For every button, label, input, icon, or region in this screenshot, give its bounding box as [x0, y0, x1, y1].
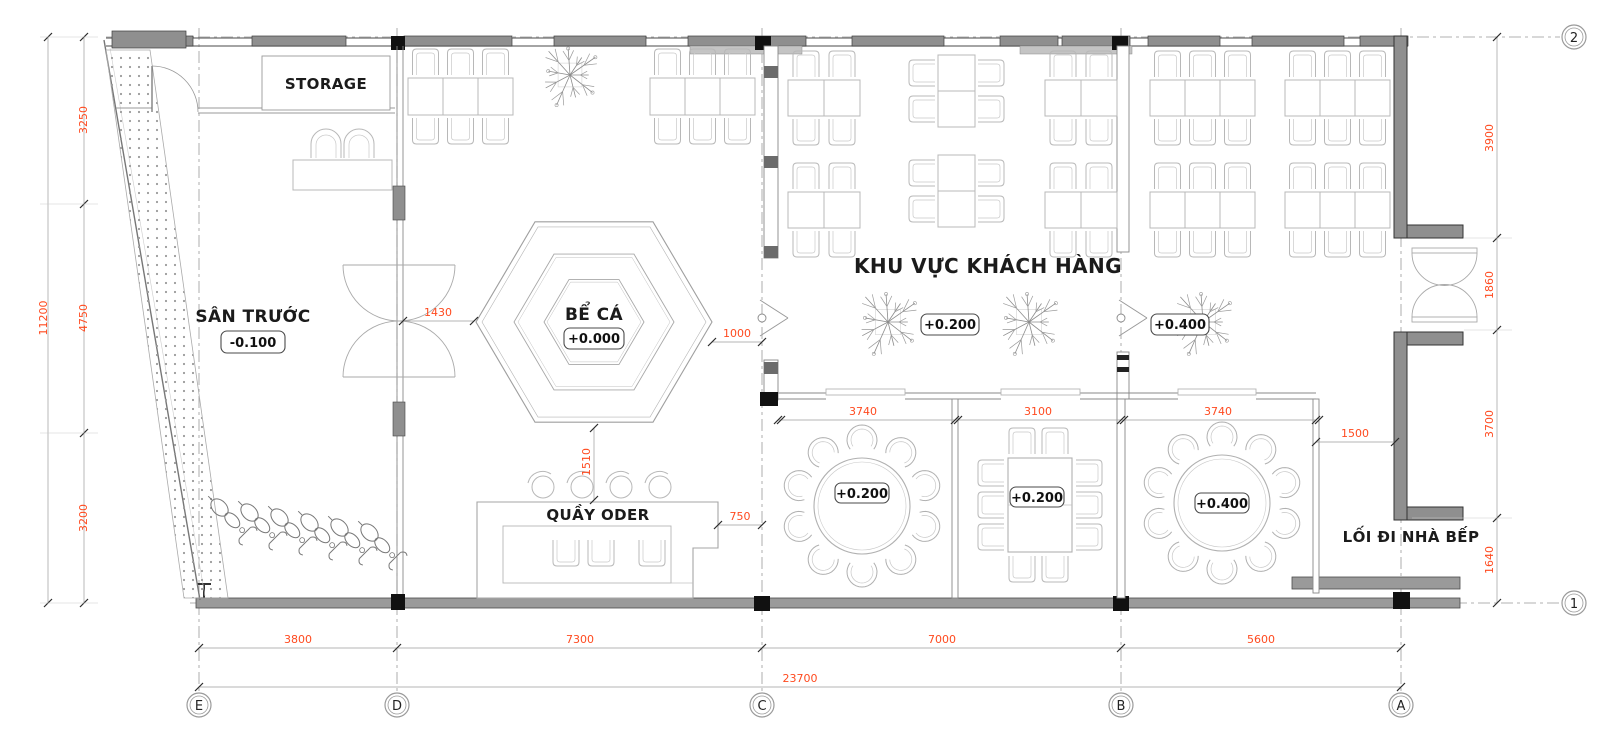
chair [1290, 51, 1316, 77]
grid-col-d: D [392, 699, 402, 714]
dining-table [1045, 192, 1081, 228]
dim-bottom-cb: 7000 [928, 633, 956, 646]
labels-layer: STORAGE SÂN TRƯỚC -0.100 BỂ CÁ +0.000 KH… [37, 31, 1578, 714]
tub-chair-inner [1250, 546, 1272, 567]
chair-inner [452, 53, 470, 75]
bottom-wall [196, 598, 1460, 608]
dining-table [720, 78, 755, 115]
chair-inner [487, 53, 505, 75]
chair [1050, 119, 1076, 145]
chair-inner [913, 164, 935, 182]
bar-stool [532, 476, 554, 498]
chair [1155, 231, 1181, 257]
chair-inner [1329, 55, 1347, 77]
chair [1225, 119, 1251, 145]
chair [1190, 119, 1216, 145]
dining-table [1185, 80, 1220, 116]
wall-band [764, 66, 778, 78]
chair-inner [1229, 119, 1247, 141]
chair-inner [1294, 231, 1312, 253]
top-wall-segment [252, 36, 346, 46]
chair [829, 163, 855, 189]
chair [793, 51, 819, 77]
tub-chair-inner [890, 442, 912, 463]
chair [1009, 428, 1035, 454]
tree-twig [866, 320, 875, 323]
chair [1290, 231, 1316, 257]
dining-table [1320, 192, 1355, 228]
plan-geometry [358, 521, 362, 525]
tub-chair-inner [851, 429, 873, 446]
customer-area-level-right: +0.400 [1154, 318, 1206, 333]
plan-geometry [329, 542, 340, 553]
tree-twig [1214, 318, 1221, 322]
dining-table [938, 191, 975, 227]
chair [1190, 51, 1216, 77]
tub-chair [886, 545, 916, 574]
chair-inner [1364, 231, 1382, 253]
chair-inner [833, 55, 851, 77]
tree-branch [1029, 303, 1041, 322]
floor-plan-canvas: STORAGE SÂN TRƯỚC -0.100 BỂ CÁ +0.000 KH… [0, 0, 1615, 736]
bar-stool [571, 476, 593, 498]
chair [1155, 51, 1181, 77]
tree-twig [1030, 335, 1033, 345]
chair-inner [1054, 167, 1072, 189]
storage-label: STORAGE [285, 75, 367, 93]
tree-twig [1007, 320, 1016, 323]
chair-inner [487, 118, 505, 140]
tree-twig [1202, 296, 1207, 307]
bar-stool [610, 476, 632, 498]
tub-chair [1168, 435, 1198, 464]
passage-marker [1117, 314, 1125, 322]
dim-right-3: 3700 [1483, 410, 1496, 438]
kitchen-door-leaf [1412, 248, 1477, 253]
chair [829, 119, 855, 145]
chair-inner [797, 55, 815, 77]
kitchen-walkway-label: LỐI ĐI NHÀ BẾP [1343, 525, 1480, 546]
tree-branch [568, 49, 570, 75]
chair-inner [1090, 231, 1108, 253]
plan-geometry [298, 511, 302, 515]
plan-geometry [238, 501, 242, 505]
chair [1076, 492, 1102, 518]
chair-inner [913, 100, 935, 118]
plan-geometry [281, 530, 288, 537]
tree [862, 292, 917, 355]
tree-twig [569, 50, 574, 60]
plan-geometry [359, 547, 370, 558]
chair-inner [1229, 167, 1247, 189]
plan-geometry [297, 549, 304, 556]
order-counter-label: QUẦY ODER [546, 503, 649, 524]
chair-inner [1090, 167, 1108, 189]
chair-inner [1054, 55, 1072, 77]
tub-chair-inner [1172, 546, 1194, 567]
tree-twig [1204, 335, 1207, 345]
tree [545, 47, 597, 107]
customer-area-label: KHU VỰC KHÁCH HÀNG [854, 254, 1122, 278]
chair [483, 118, 509, 144]
tree-branch [1029, 303, 1056, 322]
dining-table [938, 155, 975, 191]
dim-room-2: 3100 [1024, 405, 1052, 418]
motorbike-headset [329, 542, 336, 549]
room-divider [1117, 399, 1125, 598]
dim-right-1: 3900 [1483, 124, 1496, 152]
fish-tank-label: BỂ CÁ [565, 300, 624, 325]
chair [413, 118, 439, 144]
tub-chair-inner [812, 549, 834, 570]
chair-inner [417, 53, 435, 75]
chair-inner [797, 119, 815, 141]
motorbike-headset [269, 532, 276, 539]
plan-geometry [371, 545, 378, 552]
tub-chair [1246, 435, 1276, 464]
chair [1290, 119, 1316, 145]
tree-twig [1195, 340, 1196, 355]
tree-twig [580, 71, 587, 75]
dim-counter-front: 1510 [580, 448, 593, 476]
console-table [293, 160, 392, 190]
chair [1050, 163, 1076, 189]
dim-left-1: 3250 [77, 106, 90, 134]
bar-stool [649, 476, 671, 498]
room-wall-right [1313, 399, 1319, 593]
chair [1325, 163, 1351, 189]
chair [909, 160, 935, 186]
chair-inner [982, 528, 1004, 546]
kitchen-door-arc [1412, 253, 1477, 286]
chair [978, 492, 1004, 518]
chair-inner [1076, 496, 1098, 514]
chair-inner [978, 64, 1000, 82]
dim-bottom-ba: 5600 [1247, 633, 1275, 646]
plan-geometry [341, 540, 348, 547]
chair [978, 160, 1004, 186]
top-wall-segment [688, 36, 806, 46]
chair-inner [1159, 119, 1177, 141]
chair [1009, 556, 1035, 582]
arch-chair-inner [349, 135, 369, 158]
sliding-door [1001, 389, 1080, 395]
motorbike-board [222, 510, 243, 531]
dining-table [1150, 192, 1185, 228]
column [760, 392, 778, 406]
chair [1086, 119, 1112, 145]
wall-band [764, 156, 778, 168]
dim-right-4: 1640 [1483, 546, 1496, 574]
grid-col-a: A [1397, 699, 1406, 714]
private-room-3-level: +0.400 [1196, 497, 1248, 512]
tree-twig [549, 73, 558, 76]
top-wall-segment [1148, 36, 1220, 46]
tree-twig [1028, 296, 1033, 307]
sliding-door [826, 389, 905, 395]
tree-twig [1021, 340, 1022, 355]
plan-geometry [311, 535, 318, 542]
wall-band [764, 362, 778, 374]
chair-inner [729, 118, 747, 140]
chair-inner [659, 53, 677, 75]
chair [725, 118, 751, 144]
passage-marker [758, 314, 766, 322]
chair-inner [1194, 167, 1212, 189]
chair [1225, 163, 1251, 189]
tree-twig [899, 322, 906, 326]
column [1393, 592, 1410, 609]
chair-inner [417, 118, 435, 140]
tub-chair [886, 438, 916, 467]
chair [1086, 163, 1112, 189]
tree-tip [594, 56, 597, 59]
chair [448, 49, 474, 75]
chair-inner [982, 496, 1004, 514]
top-wall-segment [1000, 36, 1058, 46]
dim-room-3: 3740 [1204, 405, 1232, 418]
chair-inner [659, 118, 677, 140]
chair [655, 49, 681, 75]
tree-twig [899, 318, 906, 322]
chair [1155, 119, 1181, 145]
chair [1076, 524, 1102, 550]
chair-inner [913, 200, 935, 218]
motorbike-headset [299, 537, 306, 544]
tub-chair-inner [1148, 472, 1168, 494]
chair-inner [1076, 528, 1098, 546]
dining-table [1355, 80, 1390, 116]
plan-geometry [268, 506, 272, 510]
dining-table [788, 80, 824, 116]
glazing-column [393, 186, 405, 220]
chair-inner [982, 464, 1004, 482]
dim-left-3: 3200 [77, 504, 90, 532]
tree-twig [563, 92, 564, 106]
tree-twig [889, 335, 892, 345]
chair [1155, 163, 1181, 189]
tub-chair-inner [1148, 512, 1168, 534]
private-room-2-level: +0.200 [1011, 491, 1063, 506]
tub-chair-inner [1211, 563, 1233, 580]
plan-geometry [357, 559, 364, 566]
dining-table [1355, 192, 1390, 228]
chair-inner [978, 100, 1000, 118]
tub-chair [808, 438, 838, 467]
chair [1190, 231, 1216, 257]
dim-left-2: 4750 [77, 304, 90, 332]
room-divider [952, 399, 958, 598]
chair-inner [694, 53, 712, 75]
chair-inner [1364, 55, 1382, 77]
counter-island [503, 526, 671, 583]
tree-branch [570, 57, 595, 75]
chair-inner [1329, 167, 1347, 189]
arch-chair [311, 129, 341, 158]
dim-counter-side: 750 [730, 510, 751, 523]
arch-chair [344, 129, 374, 158]
chair [909, 96, 935, 122]
chair [978, 196, 1004, 222]
chair [1325, 51, 1351, 77]
kitchen-wall [1394, 36, 1407, 238]
tree-branch [888, 303, 900, 322]
chair [909, 60, 935, 86]
dining-table [1150, 80, 1185, 116]
chair-inner [1090, 55, 1108, 77]
plan-geometry [299, 537, 310, 548]
column [391, 594, 405, 606]
grid-col-c: C [757, 699, 766, 714]
tree-twig [1214, 322, 1221, 326]
chair [978, 460, 1004, 486]
tub-chair [1246, 542, 1276, 571]
tree-branch [1027, 294, 1029, 322]
dining-table [938, 55, 975, 91]
dim-bottom-total: 23700 [783, 672, 818, 685]
chair [1360, 163, 1386, 189]
dining-table [443, 78, 478, 115]
chair-inner [1159, 167, 1177, 189]
chair-inner [1054, 119, 1072, 141]
grid-col-b: B [1117, 699, 1126, 714]
tree-branch [886, 294, 888, 322]
plan-geometry [389, 552, 400, 563]
chair-inner [833, 119, 851, 141]
chair [1290, 163, 1316, 189]
dining-table [1285, 80, 1320, 116]
chair [655, 118, 681, 144]
wall-band [1117, 367, 1129, 372]
arch-chair-inner [316, 135, 336, 158]
tree-twig [887, 296, 892, 307]
chair-inner [797, 167, 815, 189]
storage-door-arc [152, 66, 198, 112]
tub-chair-inner [788, 515, 808, 537]
chair [1360, 51, 1386, 77]
dim-tank-gap: 1000 [723, 327, 751, 340]
grid-row-2: 2 [1570, 31, 1578, 46]
furniture-layer [200, 47, 1390, 598]
dining-table [1220, 192, 1255, 228]
top-wall-segment [852, 36, 944, 46]
tub-chair-inner [1211, 426, 1233, 443]
chair-inner [833, 167, 851, 189]
chair [978, 524, 1004, 550]
chair [829, 231, 855, 257]
chair [690, 118, 716, 144]
plan-geometry [267, 544, 274, 551]
chair-inner [1090, 119, 1108, 141]
dim-room-1: 3740 [849, 405, 877, 418]
chair [793, 231, 819, 257]
tub-chair-inner [1172, 439, 1194, 460]
tub-chair-inner [890, 549, 912, 570]
dining-table [1081, 192, 1117, 228]
top-wall-corner-plate [112, 31, 186, 48]
dining-table [788, 192, 824, 228]
chair [1076, 460, 1102, 486]
tree-branch [888, 303, 915, 322]
tub-chair-inner [812, 442, 834, 463]
kitchen-wall-arm [1407, 225, 1463, 238]
chair [1225, 231, 1251, 257]
dining-table [824, 80, 860, 116]
chair-inner [1194, 231, 1212, 253]
chair-inner [978, 164, 1000, 182]
chair-inner [1229, 55, 1247, 77]
chair [829, 51, 855, 77]
sliding-door [1178, 389, 1256, 395]
dim-door-front: 1430 [424, 306, 452, 319]
tree-twig [1040, 318, 1047, 322]
dining-table [824, 192, 860, 228]
tub-chair [808, 545, 838, 574]
chair-inner [694, 118, 712, 140]
dim-left-total: 11200 [37, 301, 50, 336]
top-wall-segment [554, 36, 646, 46]
chair-inner [1294, 119, 1312, 141]
chair [448, 118, 474, 144]
tub-chair-inner [1276, 512, 1296, 534]
wall-band [764, 246, 778, 258]
plan-geometry [269, 532, 280, 543]
chair [1086, 51, 1112, 77]
tree-twig [880, 340, 881, 355]
chair [1050, 51, 1076, 77]
chair [1325, 231, 1351, 257]
chair [978, 96, 1004, 122]
motorbike-headset [389, 552, 396, 559]
kitchen-door-arc [1412, 285, 1477, 318]
customer-area-level-left: +0.200 [924, 318, 976, 333]
chair [1042, 428, 1068, 454]
chair [1325, 119, 1351, 145]
motorbike-board [282, 520, 303, 541]
dining-table [408, 78, 443, 115]
tub-chair-inner [1250, 439, 1272, 460]
dining-table [1045, 80, 1081, 116]
motorbike-board [312, 525, 333, 546]
chair-inner [797, 231, 815, 253]
dining-table [938, 91, 975, 127]
chair-inner [1159, 55, 1177, 77]
glazing-column [393, 402, 405, 436]
dining-table [685, 78, 720, 115]
tub-chair [1168, 542, 1198, 571]
tree-branch [570, 58, 582, 75]
chair-inner [1046, 432, 1064, 454]
dining-table [1320, 80, 1355, 116]
tree-twig [571, 87, 573, 96]
dim-right-2: 1860 [1483, 271, 1496, 299]
chair [1190, 163, 1216, 189]
dim-bottom-dc: 7300 [566, 633, 594, 646]
tree [1003, 292, 1058, 355]
chair-inner [1046, 556, 1064, 578]
chair-inner [1329, 231, 1347, 253]
chair [793, 119, 819, 145]
tub-chair-inner [788, 475, 808, 497]
plan-geometry [239, 527, 250, 538]
plan-geometry [387, 564, 394, 571]
chair-inner [1013, 556, 1031, 578]
chair [1042, 556, 1068, 582]
chair-inner [1194, 119, 1212, 141]
motorbike-board [252, 515, 273, 536]
chair-inner [1013, 432, 1031, 454]
dining-table [1285, 192, 1320, 228]
